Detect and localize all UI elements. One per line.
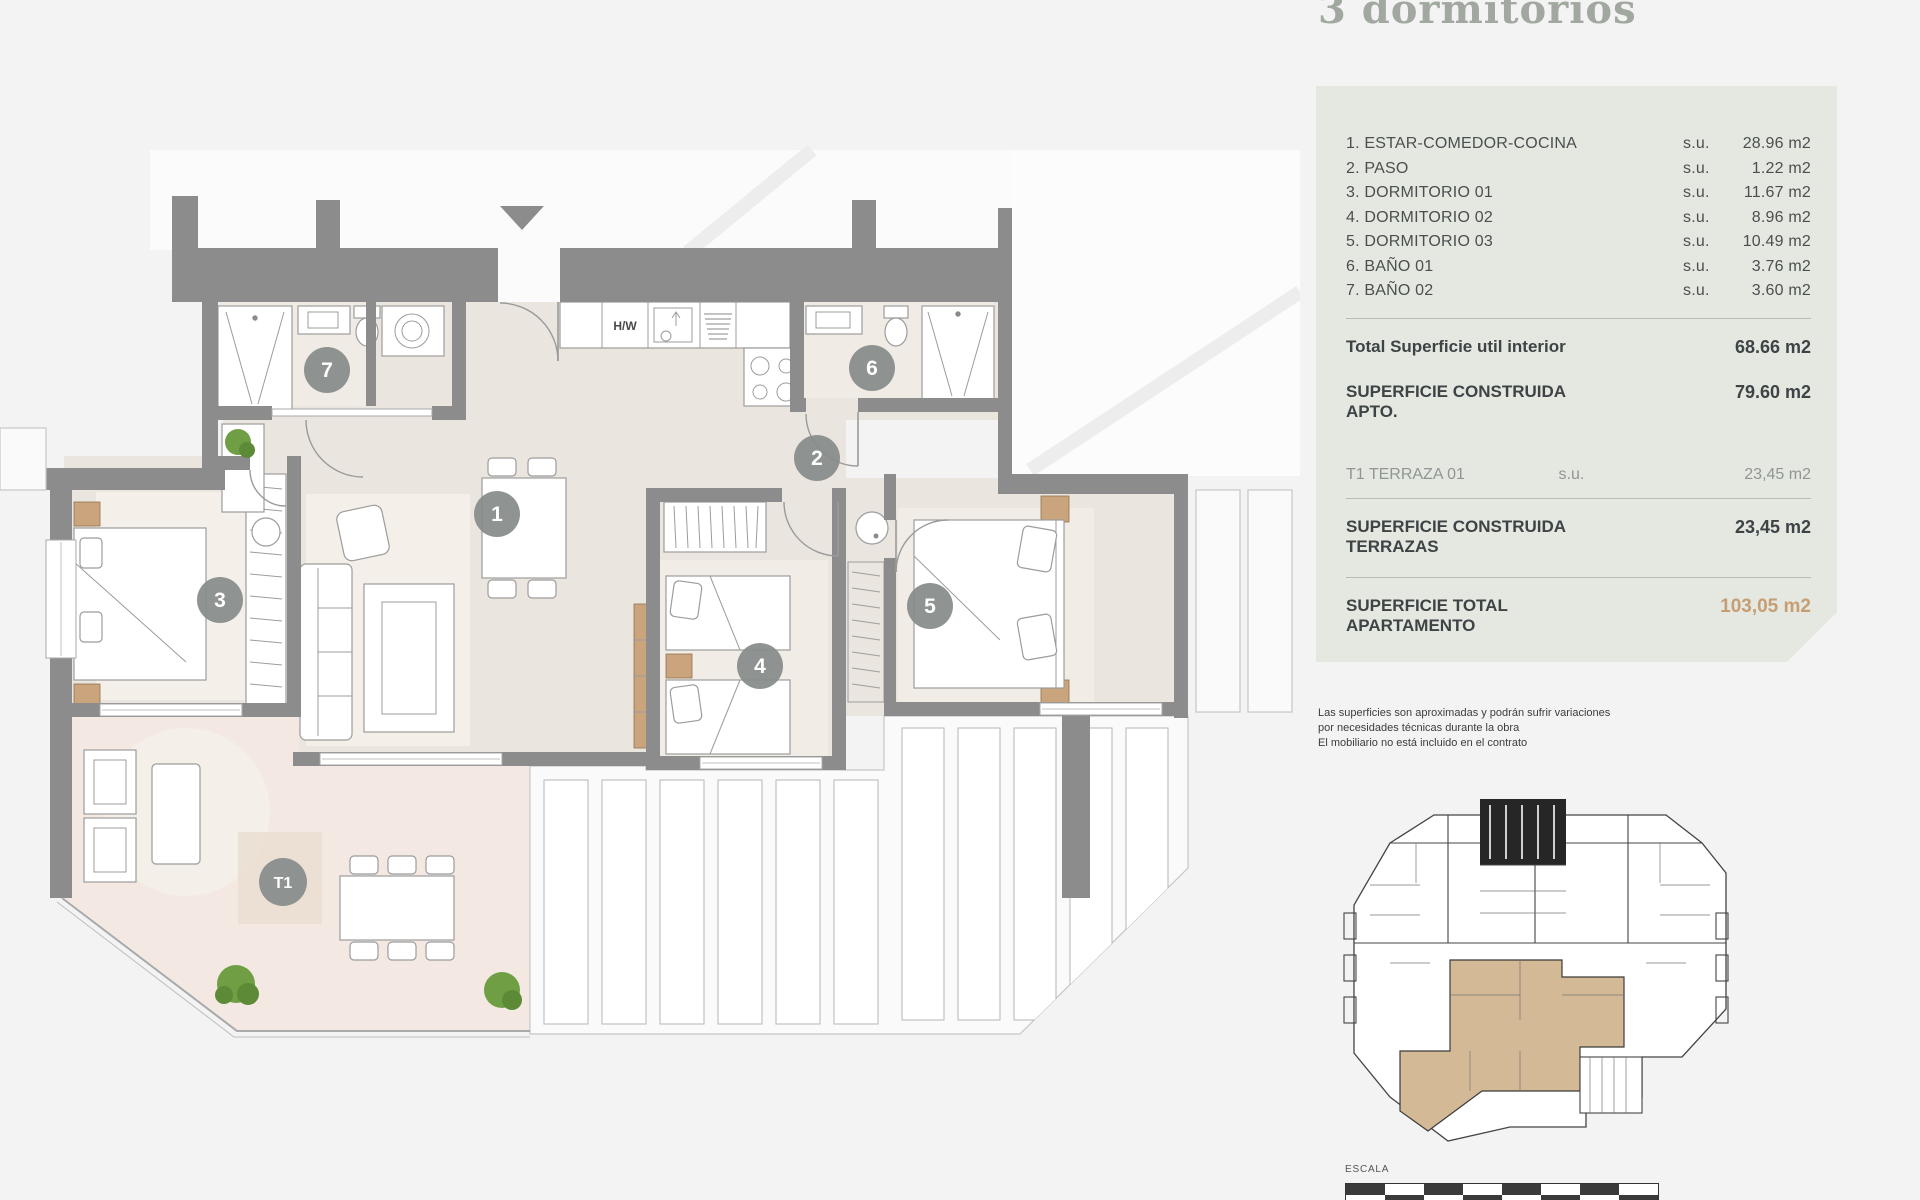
total-util-label: Total Superficie util interior bbox=[1346, 337, 1579, 357]
divider bbox=[1346, 318, 1811, 319]
summary-panel: 1. ESTAR-COMEDOR-COCINA s.u. 28.96 m2 2.… bbox=[1316, 86, 1837, 662]
building-keyplan bbox=[1330, 795, 1742, 1147]
room-row: 6. BAÑO 01 s.u. 3.76 m2 bbox=[1346, 255, 1811, 280]
divider bbox=[1346, 498, 1811, 499]
svg-text:7: 7 bbox=[321, 359, 333, 382]
svg-text:3: 3 bbox=[214, 589, 226, 612]
construida-apto-label: SUPERFICIE CONSTRUIDA APTO. bbox=[1346, 382, 1579, 422]
construida-apto-value: 79.60 m2 bbox=[1579, 382, 1812, 403]
room-row: 5. DORMITORIO 03 s.u. 10.49 m2 bbox=[1346, 230, 1811, 255]
construida-terrazas-value: 23,45 m2 bbox=[1579, 517, 1812, 538]
total-util-row: Total Superficie util interior 68.66 m2 bbox=[1346, 337, 1811, 358]
total-util-value: 68.66 m2 bbox=[1579, 337, 1812, 358]
svg-text:1: 1 bbox=[491, 503, 503, 526]
disclaimer-line: Las superficies son aproximadas y podrán… bbox=[1318, 706, 1610, 721]
disclaimer: Las superficies son aproximadas y podrán… bbox=[1318, 706, 1610, 751]
svg-text:T1: T1 bbox=[274, 875, 293, 892]
room-row: 3. DORMITORIO 01 s.u. 11.67 m2 bbox=[1346, 181, 1811, 206]
room-badge-1: 1 bbox=[474, 491, 520, 537]
room-name: 1. ESTAR-COMEDOR-COCINA bbox=[1346, 132, 1683, 157]
total-apartamento-row: SUPERFICIE TOTAL APARTAMENTO 103,05 m2 bbox=[1346, 596, 1811, 636]
terraza-su: s.u. bbox=[1559, 466, 1599, 484]
room-row: 2. PASO s.u. 1.22 m2 bbox=[1346, 157, 1811, 182]
construida-terrazas-row: SUPERFICIE CONSTRUIDA TERRAZAS 23,45 m2 bbox=[1346, 517, 1811, 557]
room-value: 28.96 m2 bbox=[1719, 132, 1811, 157]
total-apartamento-label: SUPERFICIE TOTAL APARTAMENTO bbox=[1346, 596, 1576, 636]
svg-text:6: 6 bbox=[866, 357, 878, 380]
room-badge-2: 2 bbox=[794, 435, 840, 481]
total-apartamento-value: 103,05 m2 bbox=[1576, 596, 1811, 618]
terrace-badge-t1: T1 bbox=[259, 858, 307, 906]
room-badge-4: 4 bbox=[737, 643, 783, 689]
terraza-row: T1 TERRAZA 01 s.u. 23,45 m2 bbox=[1346, 466, 1811, 484]
neighbour-panels bbox=[1196, 490, 1292, 712]
keyplan-slat-terrace bbox=[1580, 1057, 1642, 1113]
kitchen-appliance-label: H/W bbox=[613, 319, 637, 333]
floor-plan: H/W bbox=[0, 0, 1300, 1200]
disclaimer-line: El mobiliario no está incluido en el con… bbox=[1318, 736, 1610, 751]
room-su: s.u. bbox=[1683, 132, 1719, 157]
room-badge-6: 6 bbox=[849, 345, 895, 391]
svg-text:4: 4 bbox=[754, 655, 766, 678]
scale-label: ESCALA bbox=[1345, 1164, 1389, 1175]
construida-terrazas-label: SUPERFICIE CONSTRUIDA TERRAZAS bbox=[1346, 517, 1579, 557]
sliding-door bbox=[272, 409, 432, 416]
room-badge-3: 3 bbox=[197, 577, 243, 623]
page: H/W bbox=[0, 0, 1920, 1200]
svg-text:2: 2 bbox=[811, 447, 823, 470]
room-badge-7: 7 bbox=[304, 347, 350, 393]
room-row: 4. DORMITORIO 02 s.u. 8.96 m2 bbox=[1346, 206, 1811, 231]
terraza-label: T1 TERRAZA 01 bbox=[1346, 466, 1559, 484]
terraza-value: 23,45 m2 bbox=[1599, 466, 1812, 484]
room-badge-5: 5 bbox=[907, 583, 953, 629]
page-title: 3 dormitorios bbox=[1318, 0, 1637, 33]
divider bbox=[1346, 577, 1811, 578]
svg-text:5: 5 bbox=[924, 595, 936, 618]
room-row: 1. ESTAR-COMEDOR-COCINA s.u. 28.96 m2 bbox=[1346, 132, 1811, 157]
scale-bar bbox=[1345, 1183, 1659, 1200]
room-row: 7. BAÑO 02 s.u. 3.60 m2 bbox=[1346, 279, 1811, 304]
construida-apto-row: SUPERFICIE CONSTRUIDA APTO. 79.60 m2 bbox=[1346, 382, 1811, 422]
disclaimer-line: por necesidades técnicas durante la obra bbox=[1318, 721, 1610, 736]
